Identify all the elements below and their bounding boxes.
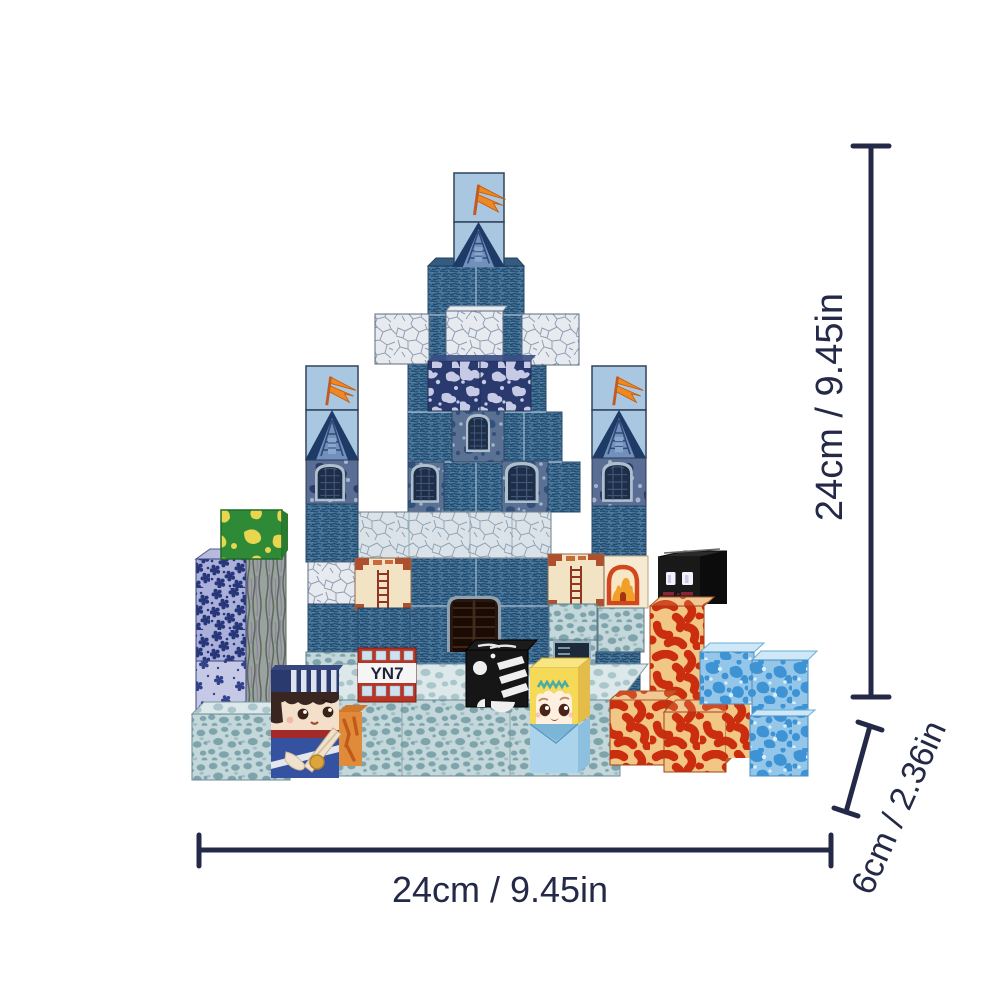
svg-text:24cm / 9.45in: 24cm / 9.45in: [392, 869, 608, 910]
svg-text:YN7: YN7: [370, 664, 403, 683]
svg-text:24cm / 9.45in: 24cm / 9.45in: [809, 293, 851, 521]
